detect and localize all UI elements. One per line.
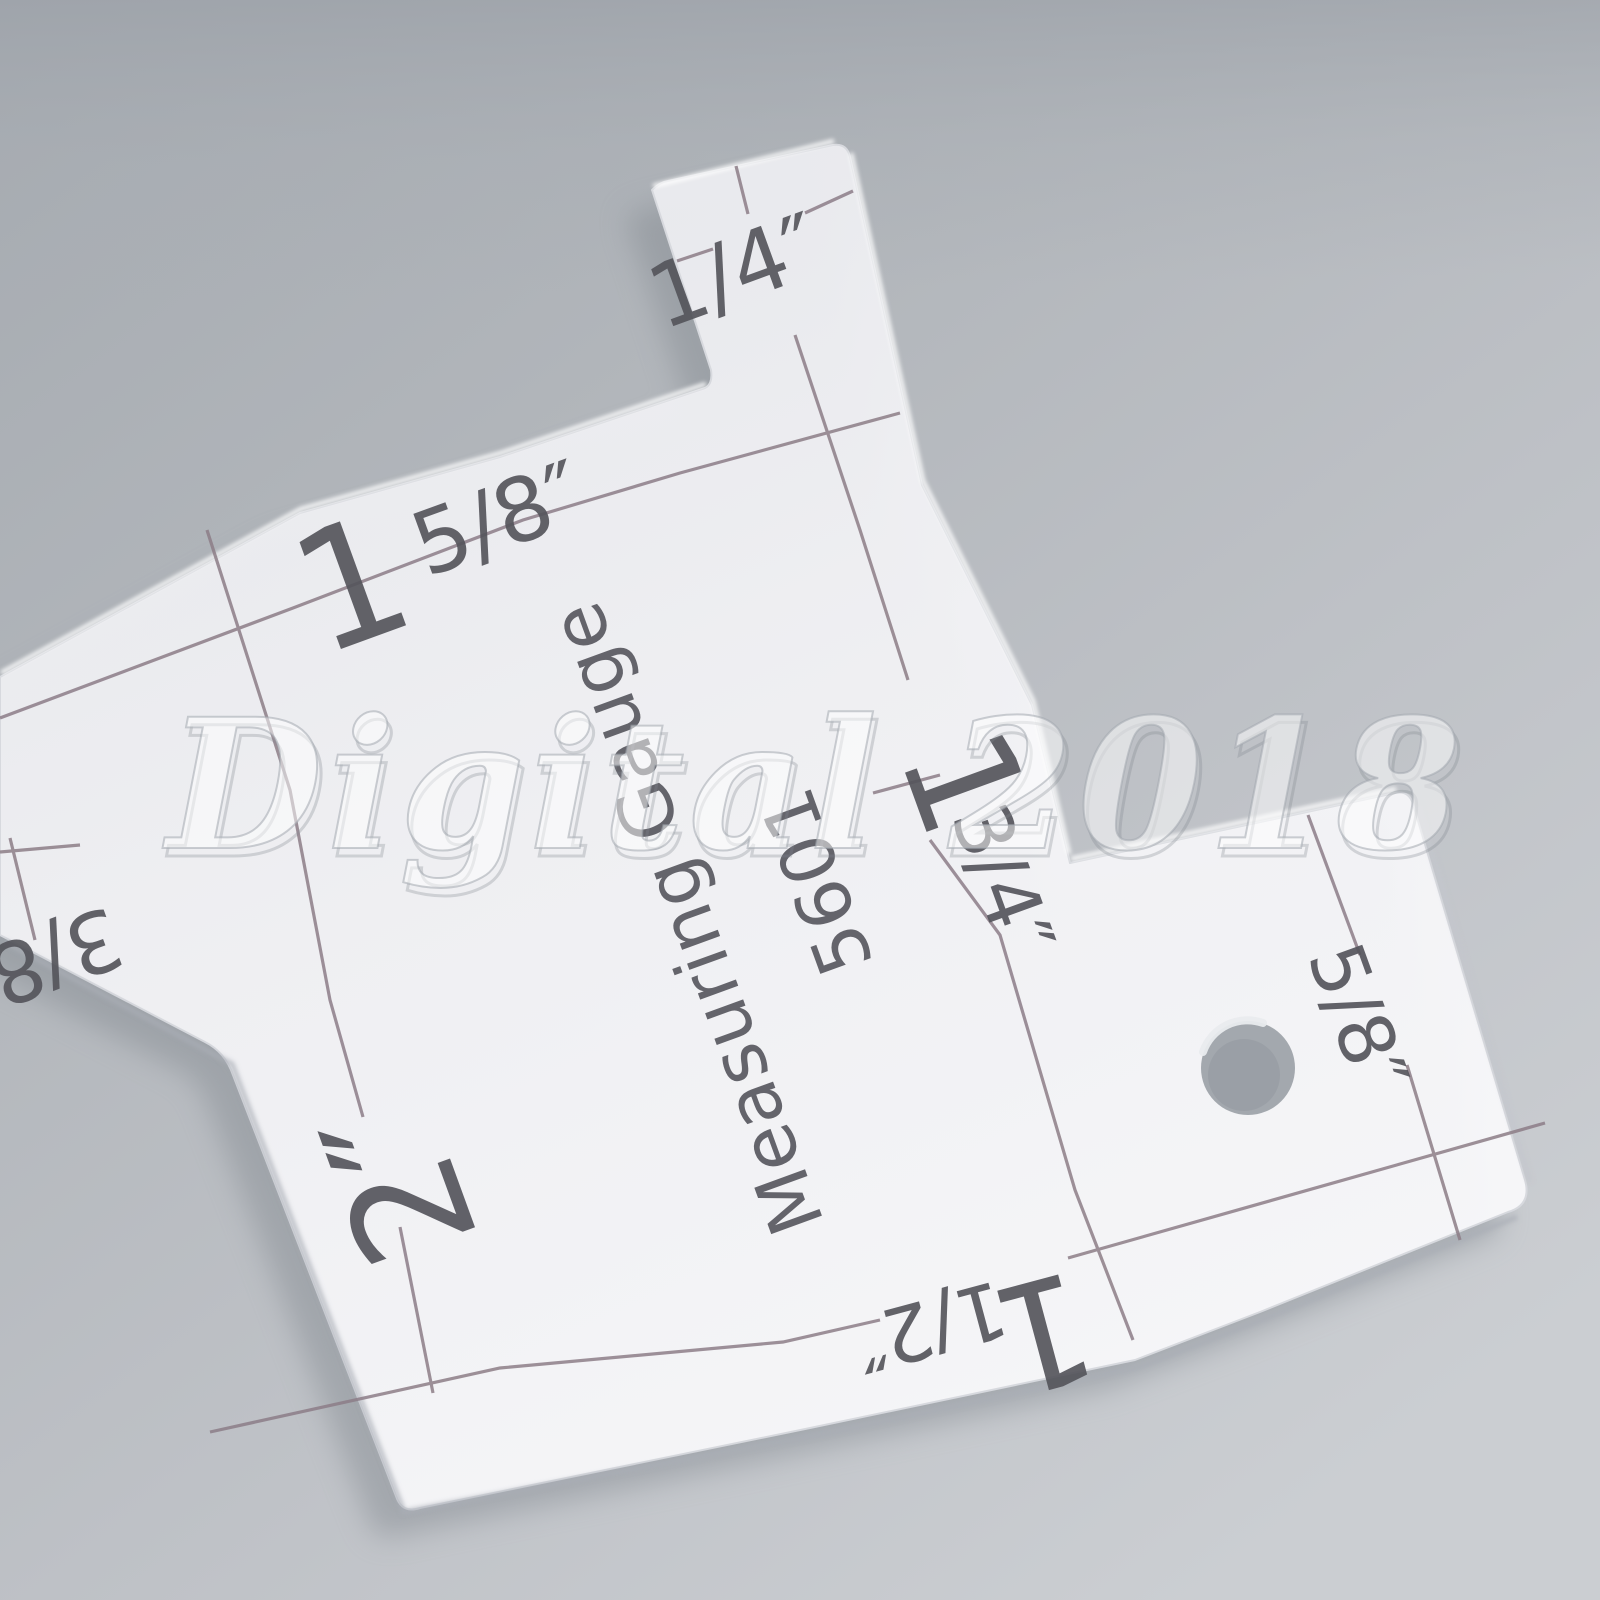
watermark-text: Digital 2018 bbox=[162, 680, 1466, 891]
hole-inner-shadow bbox=[1208, 1039, 1280, 1111]
product-photo: 1/4″ 1 5/8″ 3/8 2″ 1 3/4″ 5/8″ 1 1/2″ bbox=[0, 0, 1600, 1600]
watermark: Digital 2018 Digital 2018 bbox=[162, 680, 1470, 899]
scene: 1/4″ 1 5/8″ 3/8 2″ 1 3/4″ 5/8″ 1 1/2″ bbox=[0, 0, 1600, 1600]
thread-hole bbox=[1201, 1020, 1295, 1115]
